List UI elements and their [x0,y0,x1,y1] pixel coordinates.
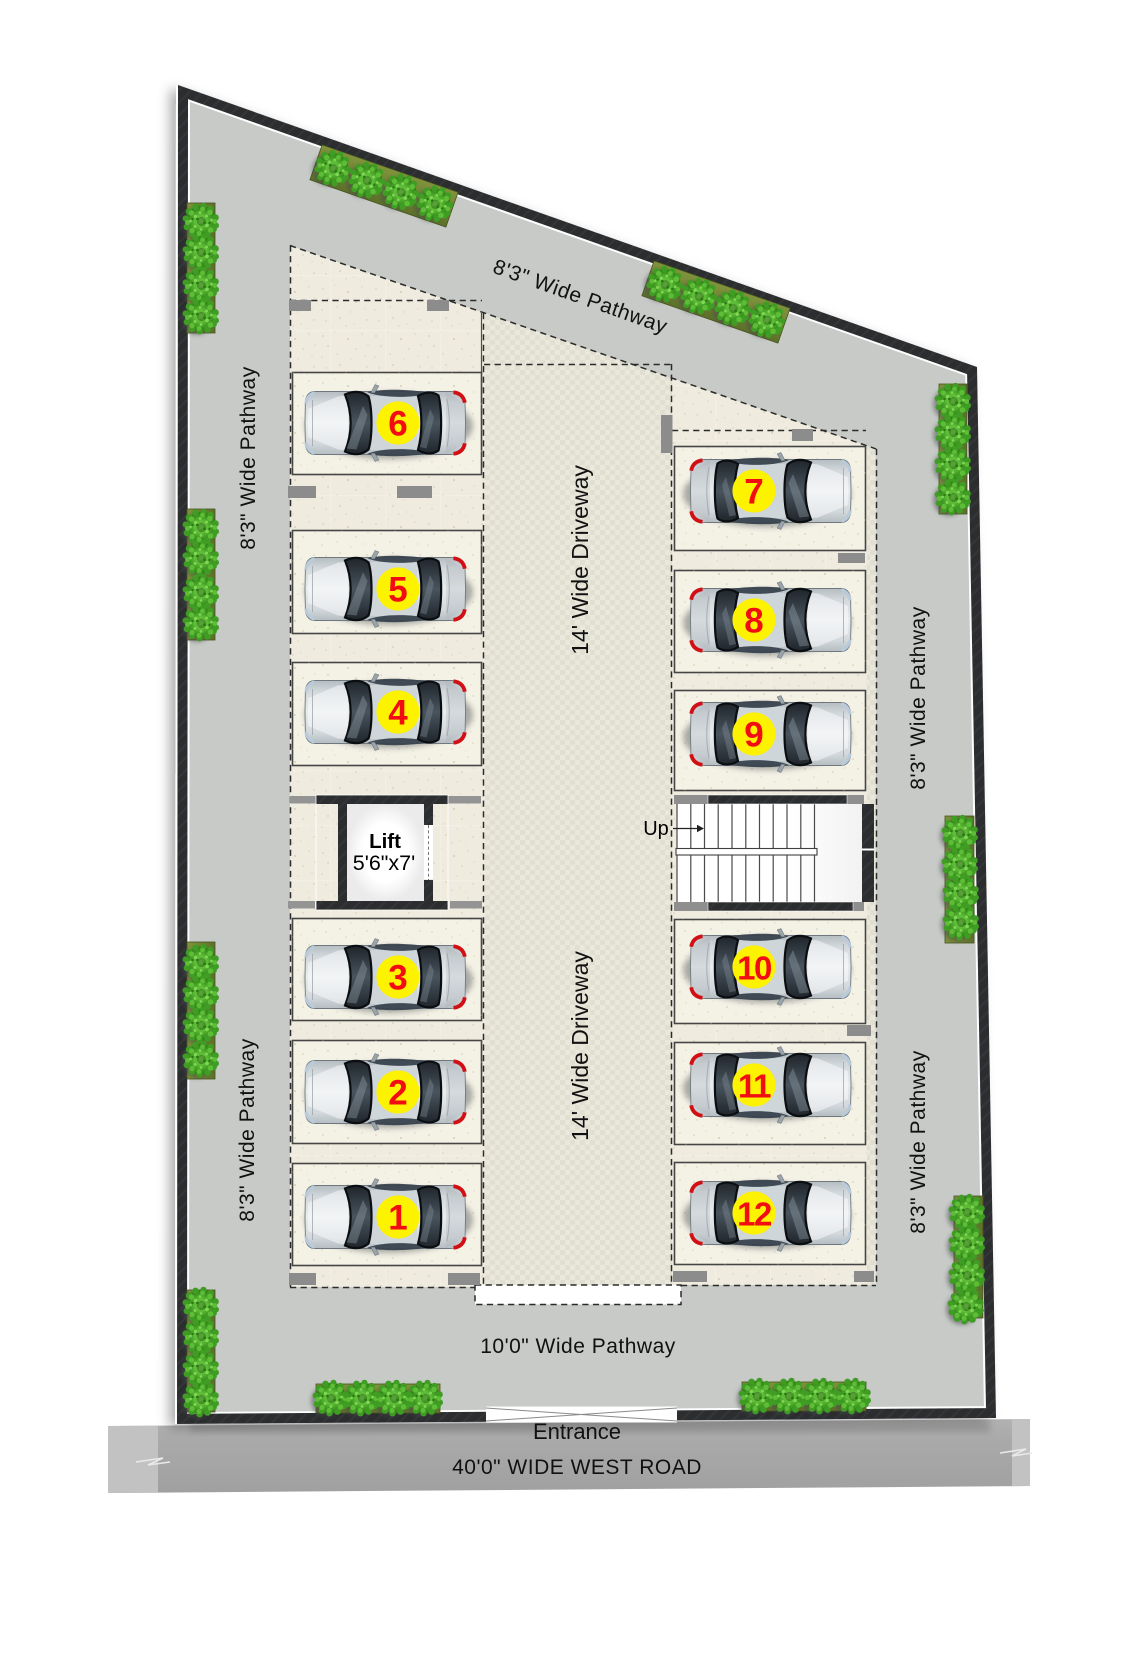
svg-text:8'3" Wide Pathway: 8'3" Wide Pathway [237,366,260,549]
svg-text:10'0" Wide Pathway: 10'0" Wide Pathway [480,1335,676,1358]
svg-text:14' Wide Driveway: 14' Wide Driveway [567,465,593,655]
svg-text:4: 4 [388,694,408,733]
svg-text:Lift: Lift [369,830,401,853]
svg-text:Entrance: Entrance [533,1419,621,1444]
svg-text:5'6"x7': 5'6"x7' [353,851,415,875]
svg-text:12: 12 [737,1196,772,1233]
svg-text:11: 11 [738,1068,771,1105]
svg-text:6: 6 [388,405,407,444]
svg-text:Up: Up [643,818,669,840]
svg-text:3: 3 [388,959,407,998]
svg-text:8: 8 [744,602,763,641]
svg-text:5: 5 [388,571,407,610]
svg-text:8'3" Wide Pathway: 8'3" Wide Pathway [907,606,930,789]
svg-text:2: 2 [388,1074,407,1113]
svg-text:7: 7 [744,473,763,512]
svg-text:1: 1 [388,1199,407,1238]
svg-text:40'0" WIDE WEST ROAD: 40'0" WIDE WEST ROAD [452,1456,702,1479]
svg-text:8'3" Wide Pathway: 8'3" Wide Pathway [236,1038,259,1221]
svg-text:8'3" Wide Pathway: 8'3" Wide Pathway [907,1050,930,1233]
svg-text:9: 9 [744,716,763,755]
svg-text:10: 10 [737,950,771,987]
svg-text:14' Wide Driveway: 14' Wide Driveway [567,951,593,1141]
